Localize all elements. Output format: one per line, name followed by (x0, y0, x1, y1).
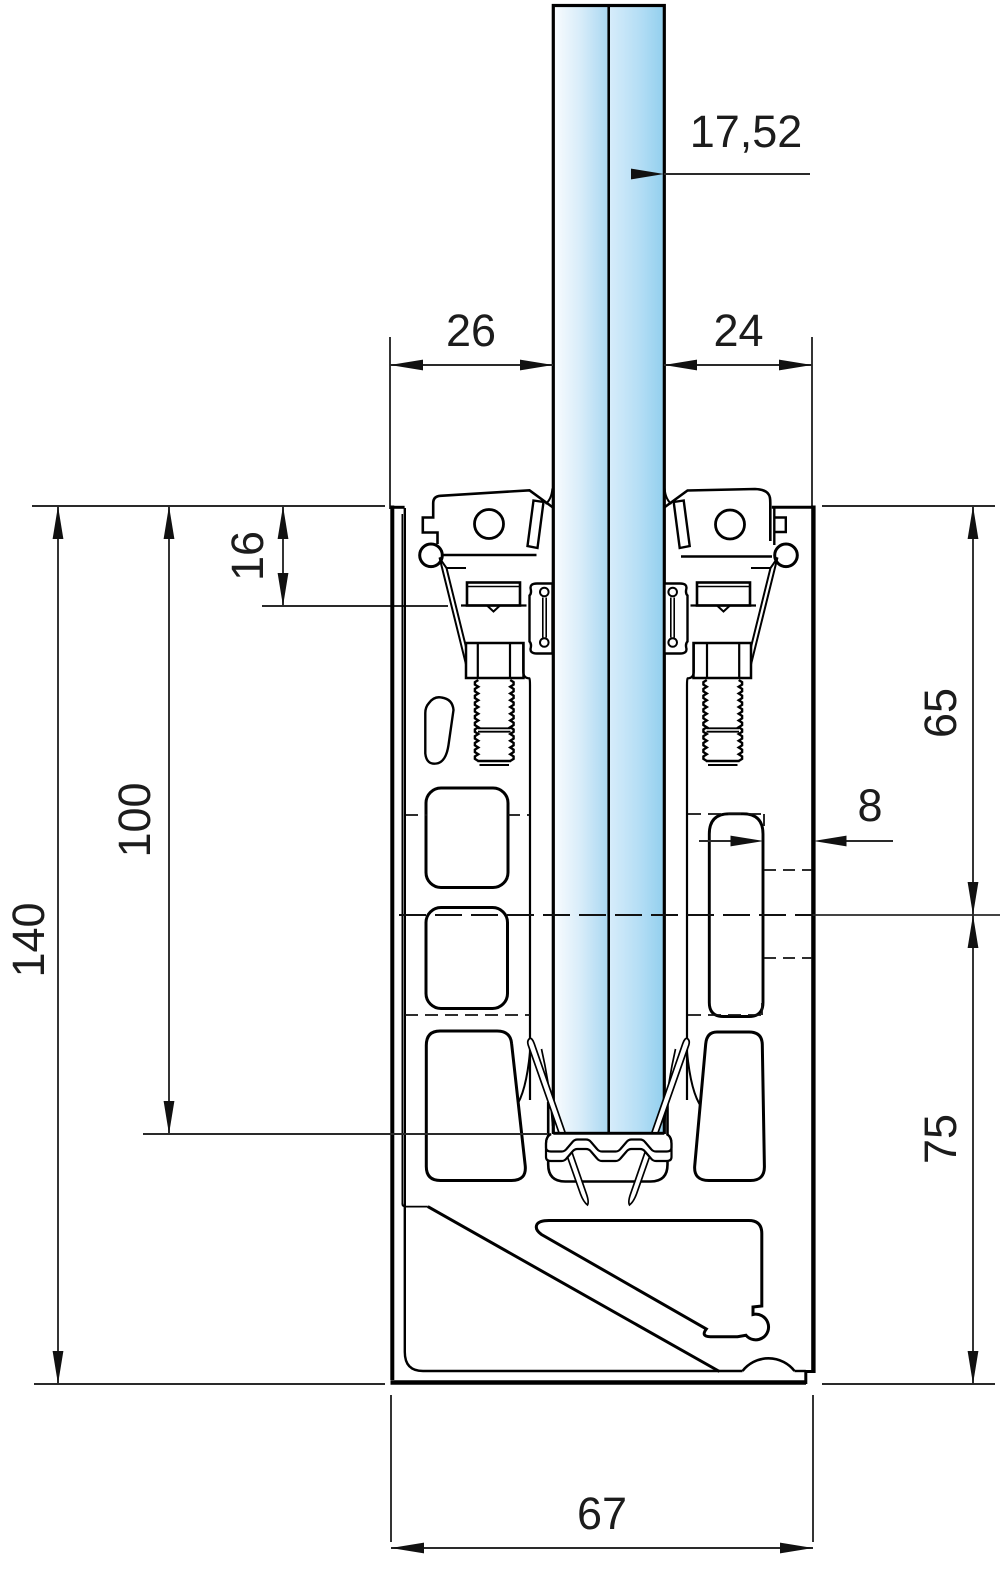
svg-text:16: 16 (222, 531, 273, 581)
svg-text:17,52: 17,52 (690, 106, 803, 157)
svg-text:100: 100 (109, 782, 160, 857)
svg-text:24: 24 (713, 305, 763, 356)
svg-text:75: 75 (915, 1114, 966, 1164)
svg-text:26: 26 (446, 305, 496, 356)
svg-text:65: 65 (915, 688, 966, 738)
svg-text:140: 140 (3, 902, 54, 977)
svg-text:8: 8 (857, 780, 882, 831)
svg-text:67: 67 (577, 1488, 627, 1539)
